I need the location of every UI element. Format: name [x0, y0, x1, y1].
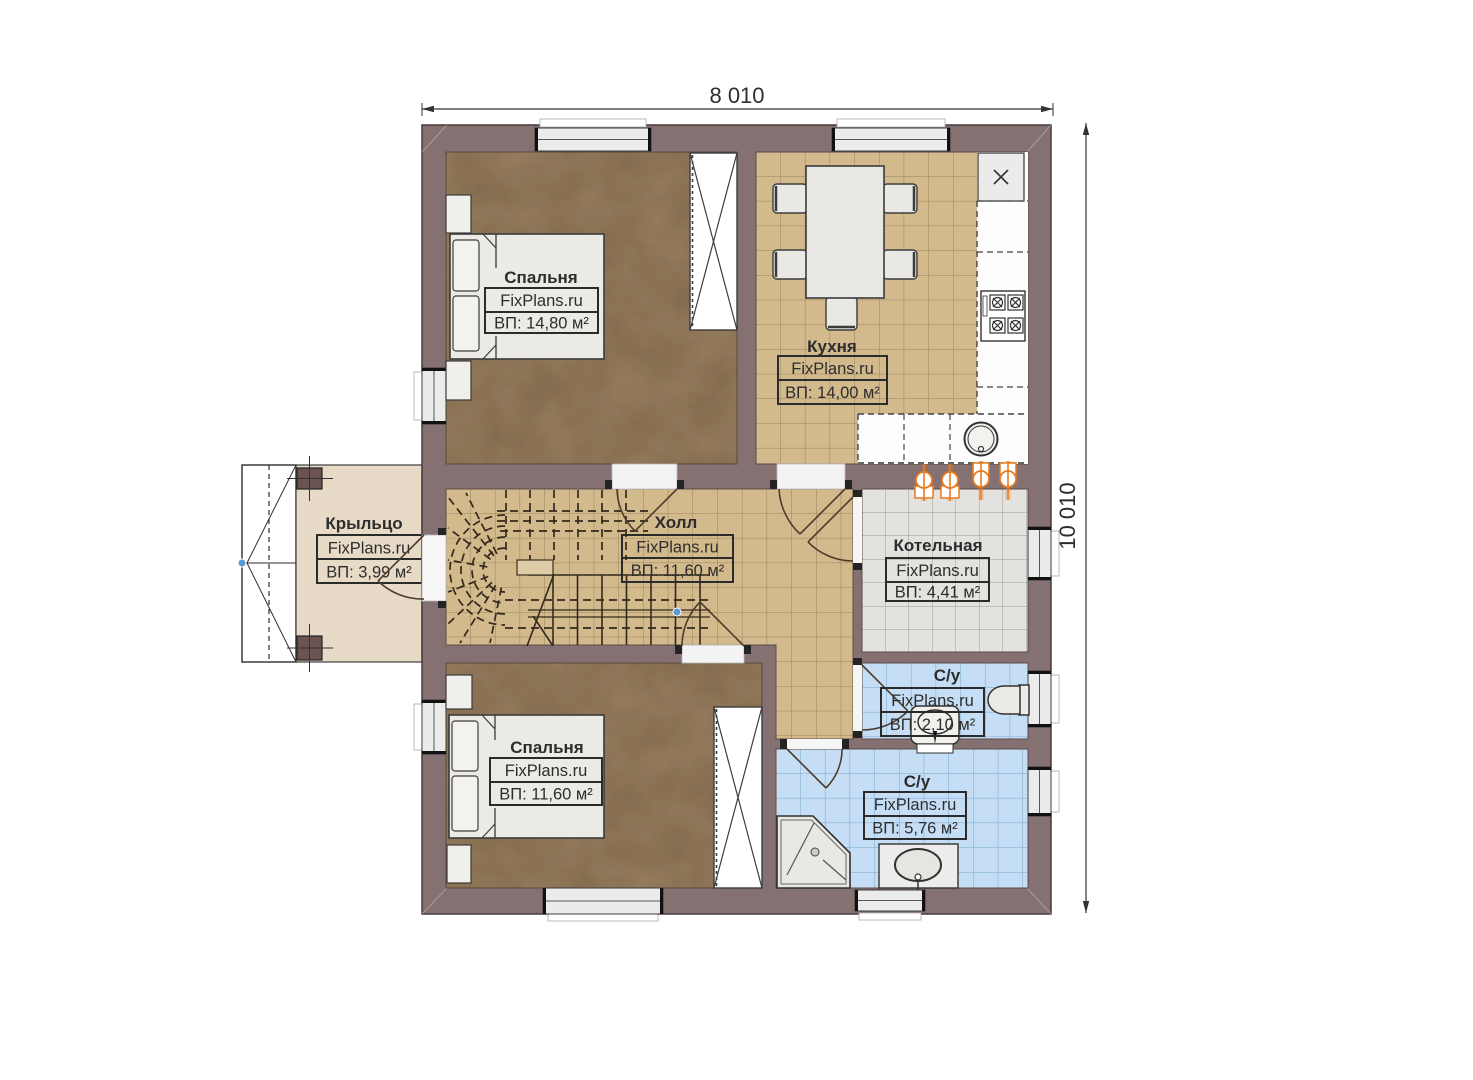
svg-text:FixPlans.ru: FixPlans.ru [891, 692, 974, 710]
svg-text:FixPlans.ru: FixPlans.ru [505, 762, 588, 780]
svg-text:ВП: 11,60 м²: ВП: 11,60 м² [499, 786, 593, 804]
svg-text:FixPlans.ru: FixPlans.ru [874, 796, 957, 814]
svg-text:FixPlans.ru: FixPlans.ru [636, 539, 719, 557]
svg-text:Котельная: Котельная [893, 536, 982, 555]
svg-text:ВП: 2,10 м²: ВП: 2,10 м² [890, 716, 976, 734]
svg-text:FixPlans.ru: FixPlans.ru [328, 540, 411, 558]
svg-text:С/у: С/у [904, 772, 931, 791]
svg-text:8 010: 8 010 [709, 83, 764, 108]
svg-text:ВП: 14,00 м²: ВП: 14,00 м² [785, 384, 880, 402]
svg-text:Крыльцо: Крыльцо [325, 514, 402, 533]
svg-text:Холл: Холл [655, 513, 698, 532]
svg-text:С/у: С/у [934, 666, 961, 685]
svg-text:ВП: 4,41 м²: ВП: 4,41 м² [895, 584, 981, 602]
svg-text:FixPlans.ru: FixPlans.ru [791, 360, 874, 378]
svg-text:ВП: 14,80 м²: ВП: 14,80 м² [494, 315, 589, 333]
svg-text:ВП: 5,76 м²: ВП: 5,76 м² [872, 820, 958, 838]
svg-text:Спальня: Спальня [510, 738, 583, 757]
svg-text:Кухня: Кухня [807, 337, 857, 356]
svg-text:ВП: 3,99 м²: ВП: 3,99 м² [326, 564, 412, 582]
svg-text:Спальня: Спальня [504, 268, 577, 287]
svg-text:ВП: 11,60 м²: ВП: 11,60 м² [631, 562, 725, 580]
svg-text:FixPlans.ru: FixPlans.ru [896, 562, 979, 580]
svg-text:FixPlans.ru: FixPlans.ru [500, 292, 583, 310]
